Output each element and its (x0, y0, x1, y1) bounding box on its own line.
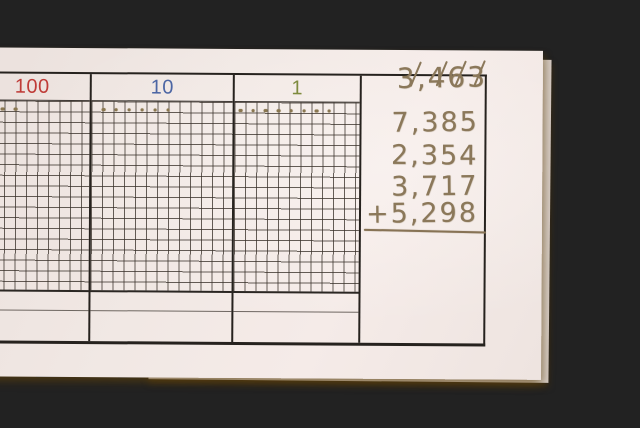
sum-column: 3,463 7,385 2,354 3,717 +5,298 (360, 76, 485, 344)
counting-dot (289, 109, 293, 113)
handwritten-number: 3,717 (391, 173, 479, 201)
counting-dot (115, 108, 119, 112)
counting-dot (277, 109, 281, 113)
hand-drawn-underline (364, 229, 486, 234)
hundreds-grid (0, 100, 90, 292)
counting-dot (14, 107, 18, 111)
column-hundreds: 100 (0, 73, 92, 341)
tens-label: 10 (151, 76, 174, 99)
column-header-tens: 10 (92, 74, 233, 102)
ones-grid (234, 102, 360, 294)
handwritten-number: 2,354 (391, 142, 478, 170)
counting-dot (264, 109, 268, 113)
counting-dot (239, 108, 243, 112)
counting-dot (328, 109, 332, 113)
counting-dot (102, 108, 106, 112)
crossed-out-number-text: 3,463 (396, 60, 487, 95)
tens-grid (91, 101, 233, 293)
hundreds-label: 100 (15, 75, 50, 98)
worksheet-paper: 100 10 1 3,463 (0, 47, 543, 380)
counting-dot (153, 108, 157, 112)
counting-dot (140, 108, 144, 112)
counting-dot (251, 109, 255, 113)
handwritten-number-crossed-out: 3,463 (396, 63, 487, 93)
place-value-table: 100 10 1 3,463 (0, 71, 487, 346)
tens-answer-row-line (90, 310, 231, 312)
column-header-hundreds: 100 (0, 73, 90, 101)
hundreds-answer-row-line (0, 309, 88, 311)
column-header-ones: 1 (235, 75, 360, 103)
photo-of-worksheet-on-desk: 100 10 1 3,463 (0, 0, 640, 428)
handwritten-number-with-plus: +5,298 (366, 199, 478, 227)
counting-dot (1, 107, 5, 111)
counting-dot (166, 108, 170, 112)
counting-dot (302, 109, 306, 113)
counting-dot (315, 109, 319, 113)
column-tens: 10 (90, 74, 235, 342)
ones-answer-row-line (233, 311, 358, 313)
ones-label: 1 (291, 77, 303, 100)
counting-dot (127, 108, 131, 112)
column-ones: 1 (233, 75, 362, 343)
handwritten-number: 7,385 (391, 109, 479, 137)
